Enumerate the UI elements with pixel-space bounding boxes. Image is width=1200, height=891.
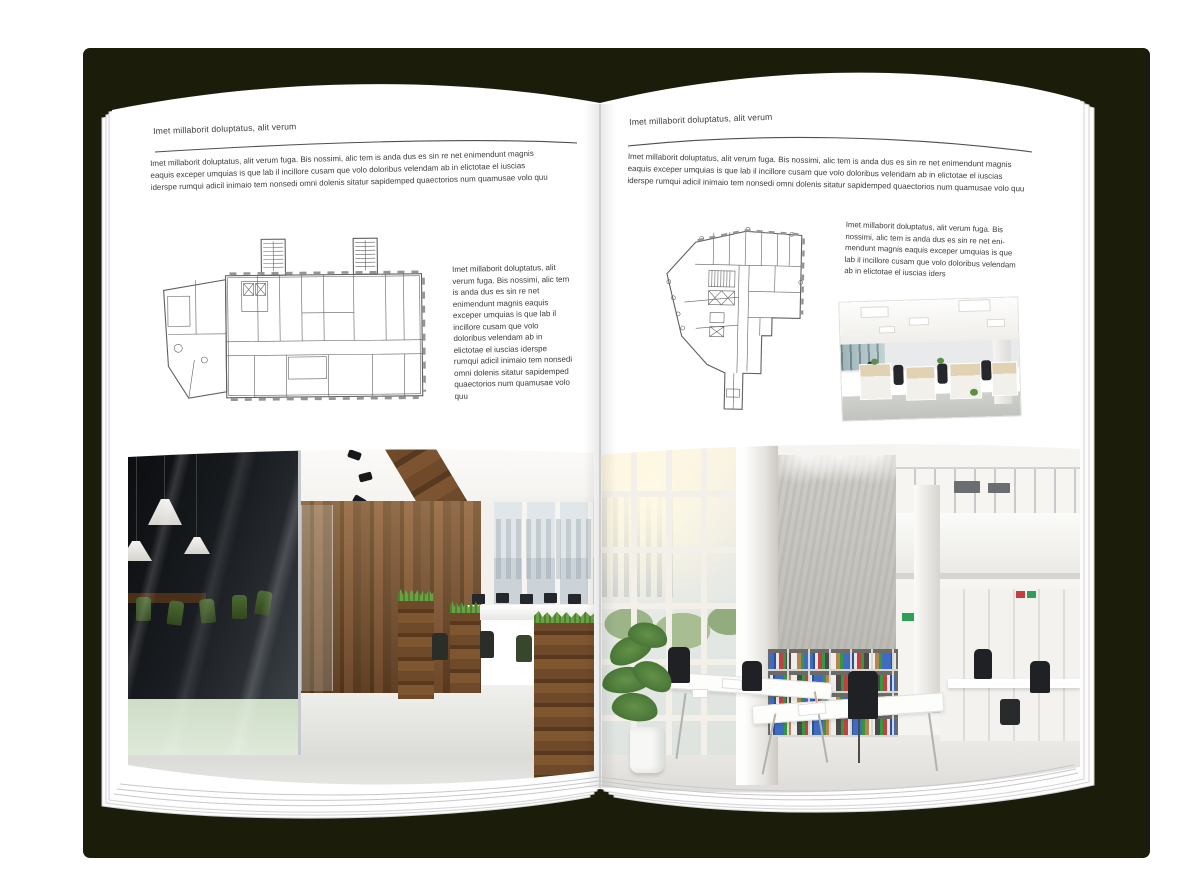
book-mockup: Imet millaborit doluptatus, alit verum I…: [0, 0, 1200, 891]
mesh-chair-foreground: [848, 671, 878, 719]
mesh-chair: [742, 661, 762, 691]
ceiling-light: [880, 327, 894, 332]
right-page-side-text: Imet millaborit doluptatus, alit verum f…: [844, 219, 1020, 282]
right-desk: [948, 679, 1080, 688]
office-chair: [1030, 661, 1050, 693]
safety-sign: [1016, 591, 1025, 598]
wall-vent: [988, 483, 1010, 493]
office-chair: [937, 363, 948, 383]
office-chair: [432, 633, 448, 660]
office-photo-left: [126, 447, 594, 789]
wall-vent: [954, 481, 980, 493]
wood-planter-foreground: [534, 621, 594, 789]
monitor: [520, 594, 533, 604]
monitor: [544, 593, 557, 603]
glass-reflection: [126, 447, 300, 755]
chair-stem: [858, 719, 860, 763]
glass-panel-edge: [298, 447, 301, 755]
wood-cabinet: [905, 366, 936, 401]
papers: [722, 678, 743, 690]
office-chair: [516, 635, 532, 662]
papers: [692, 689, 708, 698]
office-chair: [893, 365, 904, 385]
glass-door: [301, 505, 333, 691]
plant-pot: [630, 727, 664, 773]
monitor: [472, 594, 485, 604]
waste-bin: [1000, 699, 1020, 725]
wood-planter: [398, 599, 434, 699]
concrete-feature-wall: [778, 455, 896, 653]
office-photo-small: [839, 297, 1020, 420]
ceiling-light: [861, 307, 887, 317]
safety-sign: [1027, 591, 1036, 598]
monitor: [496, 593, 509, 603]
floor-plan-right: [648, 219, 814, 420]
floor-plan-left: [157, 236, 441, 413]
office-chair: [981, 360, 992, 380]
left-page-side-text: Imet millaborit doluptatus, alit verum f…: [452, 262, 575, 402]
wood-cabinet: [859, 363, 892, 400]
ceiling-light: [959, 300, 989, 311]
round-column-2: [914, 485, 940, 713]
wood-cabinet: [991, 361, 1018, 396]
ceiling-light: [910, 318, 928, 325]
wood-planter: [450, 611, 480, 693]
office-chair: [974, 649, 992, 679]
office-chair: [478, 631, 494, 658]
office-photo-right: [602, 441, 1080, 795]
monitor: [568, 594, 581, 604]
city-skyline: [496, 519, 592, 579]
ceiling-light: [988, 320, 1004, 326]
